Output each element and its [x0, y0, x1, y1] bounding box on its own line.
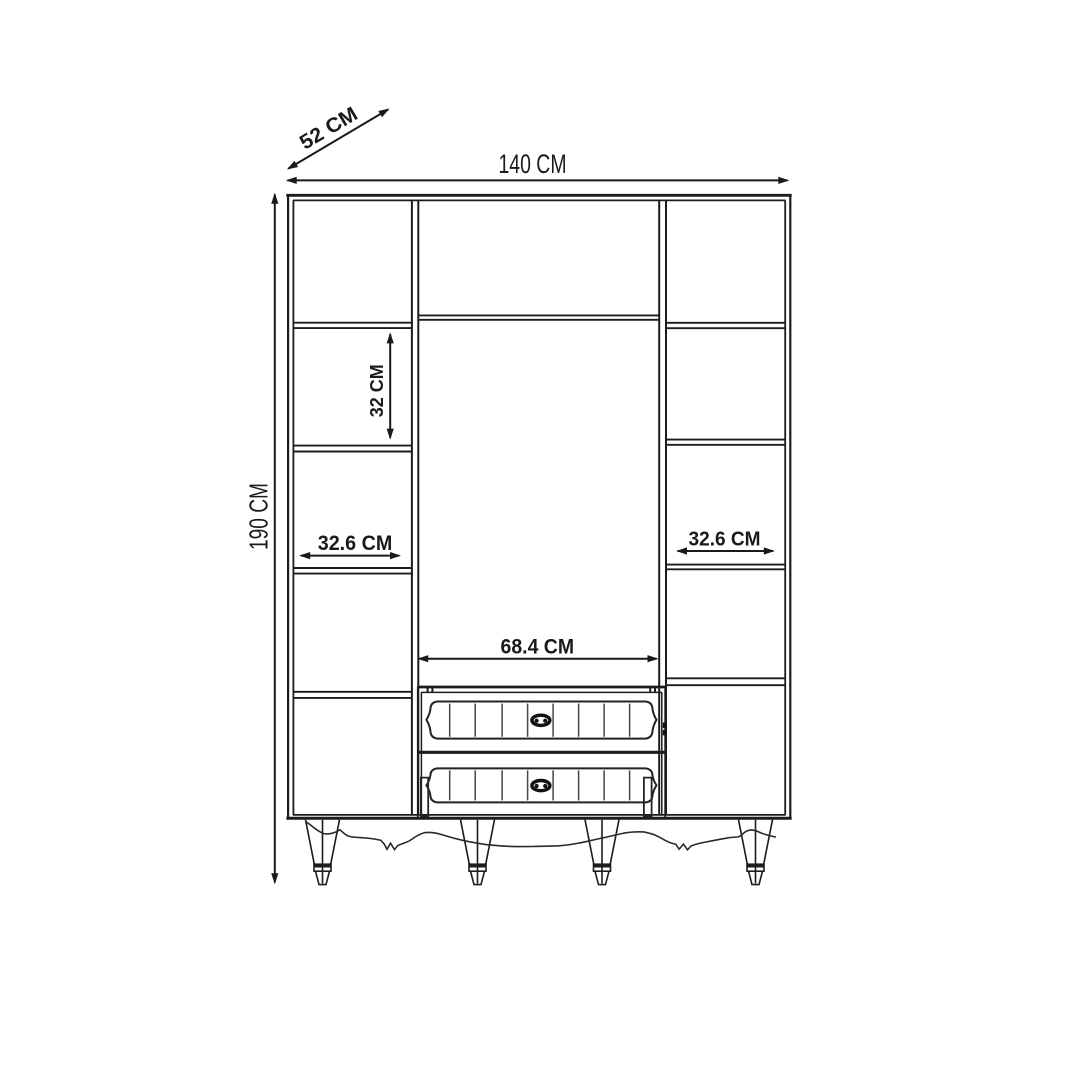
svg-text:140 CM: 140 CM — [499, 149, 567, 179]
svg-text:32.6 CM: 32.6 CM — [318, 532, 393, 555]
svg-text:32.6 CM: 32.6 CM — [689, 529, 761, 551]
svg-text:32 CM: 32 CM — [366, 364, 387, 417]
svg-text:68.4 CM: 68.4 CM — [501, 634, 575, 659]
svg-text:190 CM: 190 CM — [244, 483, 274, 550]
svg-text:52 CM: 52 CM — [296, 102, 362, 154]
